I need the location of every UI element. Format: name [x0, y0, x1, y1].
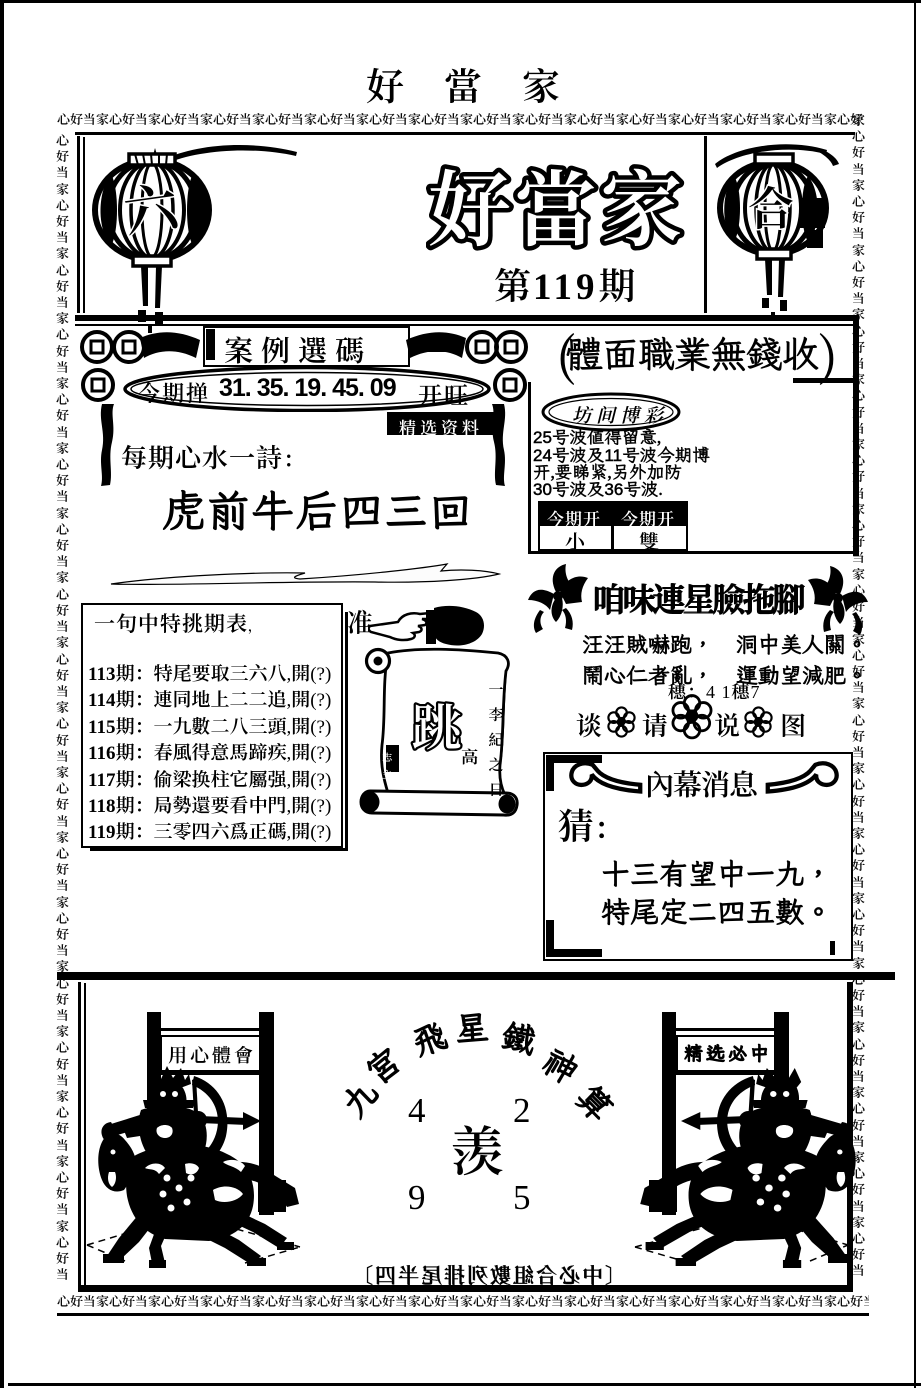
svg-text:跳: 跳: [412, 688, 462, 760]
svg-text:六: 六: [118, 165, 182, 249]
svg-text:合: 合: [748, 173, 794, 239]
svg-text:高: 高: [461, 743, 478, 768]
svg-text:一李紀之日: 一李紀之日: [486, 679, 507, 804]
svg-text:志主: 志主: [380, 749, 395, 783]
svg-text:好當家: 好當家: [428, 163, 686, 259]
